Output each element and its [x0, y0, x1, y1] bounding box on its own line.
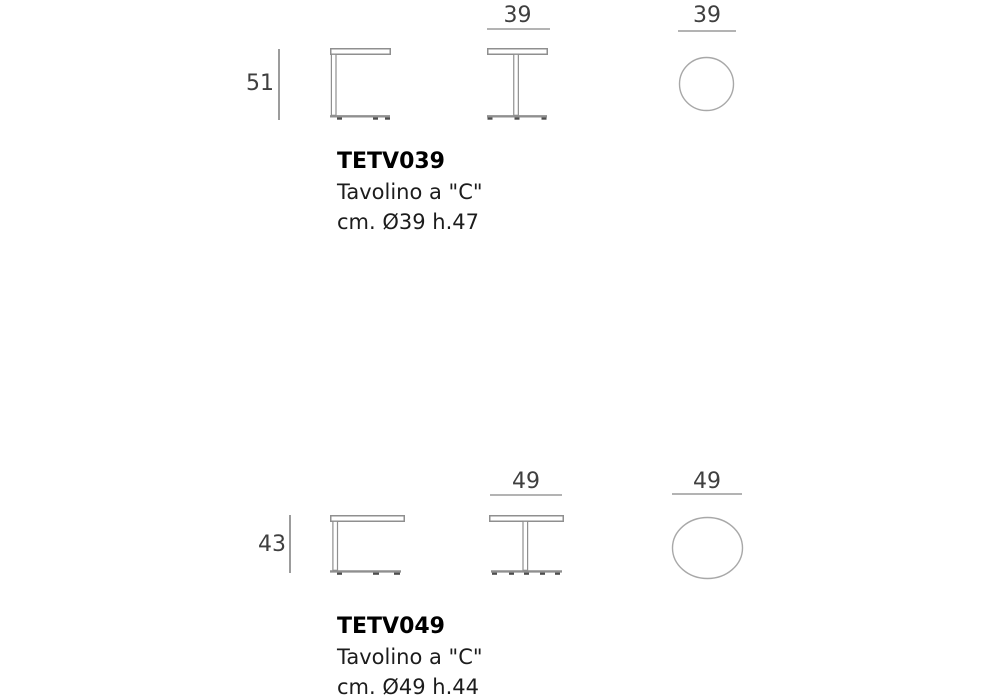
- product-code: TETV049: [337, 612, 483, 642]
- product-name: Tavolino a "C": [337, 177, 483, 207]
- product-size: cm. Ø39 h.47: [337, 207, 483, 237]
- tabletop-front: [490, 516, 564, 522]
- front-width-dimension-label: 49: [490, 470, 562, 494]
- top-view-drawing: [677, 55, 736, 113]
- tabletop-side: [331, 516, 405, 522]
- front-width-dimension-label: 39: [485, 4, 550, 28]
- column-front: [514, 54, 519, 115]
- tabletop-circle: [673, 518, 743, 579]
- side-view-drawing: [328, 46, 392, 120]
- product-info: TETV049 Tavolino a "C" cm. Ø49 h.44: [337, 612, 483, 700]
- height-dimension-label: 43: [250, 533, 286, 557]
- product-code: TETV039: [337, 147, 483, 177]
- tabletop-side: [331, 49, 391, 55]
- front-width-dimension-line: [490, 494, 562, 496]
- height-dimension-label: 51: [238, 72, 274, 96]
- leg-side: [331, 54, 336, 115]
- feet-front: [492, 573, 560, 575]
- product-info: TETV039 Tavolino a "C" cm. Ø39 h.47: [337, 147, 483, 237]
- feet-side: [337, 118, 390, 120]
- front-width-dimension-line: [487, 28, 550, 30]
- feet-front: [488, 118, 547, 120]
- top-width-dimension-line: [672, 493, 742, 495]
- spec-sheet: 51 39 39: [0, 0, 1000, 700]
- product-name: Tavolino a "C": [337, 642, 483, 672]
- front-view-drawing: [485, 46, 549, 120]
- top-width-dimension-label: 49: [672, 470, 742, 494]
- tabletop-circle: [680, 58, 734, 111]
- column-front: [523, 521, 528, 570]
- leg-side: [333, 521, 338, 570]
- tabletop-front: [488, 49, 548, 55]
- height-dimension-line: [278, 49, 280, 120]
- top-width-dimension-label: 39: [678, 4, 736, 28]
- front-view-drawing: [487, 513, 565, 575]
- product-size: cm. Ø49 h.44: [337, 672, 483, 700]
- top-view-drawing: [671, 516, 744, 580]
- feet-side: [337, 573, 400, 575]
- side-view-drawing: [328, 513, 406, 575]
- top-width-dimension-line: [678, 30, 736, 32]
- height-dimension-line: [289, 515, 291, 573]
